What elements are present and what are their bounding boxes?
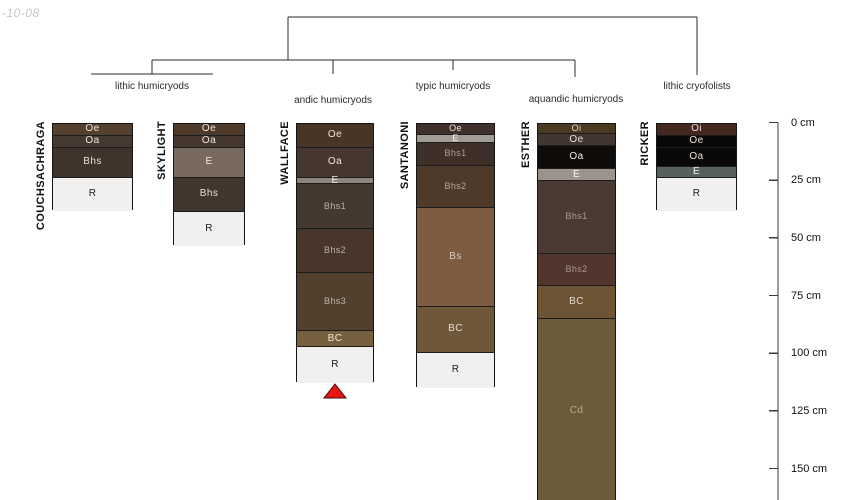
horizon-santanoni-e: E: [417, 134, 494, 142]
horizon-label: Oe: [328, 130, 342, 140]
group-label-aquandic-humicryods: aquandic humicryods: [529, 94, 624, 105]
horizon-ricker-r: R: [657, 177, 736, 212]
horizon-esther-oa: Oa: [538, 145, 615, 168]
profile-name-couchsachraga: COUCHSACHRAGA: [35, 121, 47, 230]
horizon-ricker-oa: Oa: [657, 147, 736, 167]
horizon-label: Cd: [570, 406, 584, 416]
depth-tick-label-75: 75 cm: [791, 290, 821, 302]
horizon-label: Oe: [85, 124, 99, 134]
horizon-label: R: [452, 365, 460, 375]
horizon-label: Oe: [202, 124, 216, 134]
horizon-esther-cd: Cd: [538, 318, 615, 500]
horizon-label: Oa: [85, 136, 99, 146]
profile-column-santanoni: OeEBhs1Bhs2BsBCR: [416, 123, 495, 387]
horizon-label: Bhs2: [324, 246, 346, 255]
horizon-skylight-e: E: [174, 147, 244, 177]
horizon-couchsachraga-oe: Oe: [53, 124, 132, 136]
horizon-skylight-oe: Oe: [174, 124, 244, 136]
horizon-skylight-oa: Oa: [174, 135, 244, 147]
horizon-label: Bhs2: [565, 265, 587, 274]
soil-profile-figure: -10-08 lithic humicryodsandic humicryods…: [0, 0, 850, 500]
depth-tick-label-100: 100 cm: [791, 347, 827, 359]
depth-tick-label-0: 0 cm: [791, 117, 815, 129]
horizon-couchsachraga-bhs: Bhs: [53, 147, 132, 177]
horizon-label: Bs: [449, 252, 461, 262]
depth-tick-label-50: 50 cm: [791, 232, 821, 244]
horizon-santanoni-bhs1: Bhs1: [417, 142, 494, 165]
depth-tick-label-125: 125 cm: [791, 405, 827, 417]
horizon-label: R: [693, 189, 701, 199]
group-label-typic-humicryods: typic humicryods: [416, 81, 490, 92]
depth-tick-label-25: 25 cm: [791, 174, 821, 186]
horizon-label: Oe: [569, 135, 583, 145]
horizon-label: E: [573, 170, 580, 180]
horizon-label: R: [331, 360, 339, 370]
group-label-andic-humicryods: andic humicryods: [294, 95, 372, 106]
horizon-wallface-bhs1: Bhs1: [297, 183, 373, 228]
red-triangle-marker: [324, 384, 346, 398]
horizon-wallface-e: E: [297, 177, 373, 184]
horizon-wallface-bhs3: Bhs3: [297, 272, 373, 330]
horizon-label: R: [205, 224, 213, 234]
profile-column-wallface: OeOaEBhs1Bhs2Bhs3BCR: [296, 123, 374, 383]
horizon-wallface-bhs2: Bhs2: [297, 228, 373, 272]
horizon-santanoni-bhs2: Bhs2: [417, 165, 494, 207]
group-label-lithic-cryofolists: lithic cryofolists: [663, 81, 730, 92]
profile-name-ricker: RICKER: [639, 121, 651, 166]
horizon-couchsachraga-r: R: [53, 177, 132, 212]
horizon-skylight-r: R: [174, 211, 244, 246]
horizon-wallface-r: R: [297, 346, 373, 383]
horizon-label: Oi: [691, 124, 702, 134]
horizon-label: BC: [448, 324, 463, 334]
horizon-santanoni-r: R: [417, 352, 494, 388]
horizon-couchsachraga-oa: Oa: [53, 135, 132, 147]
horizon-label: Oa: [328, 157, 342, 167]
horizon-label: Oa: [569, 152, 583, 162]
horizon-label: Bhs1: [444, 149, 466, 158]
horizon-label: E: [693, 167, 700, 177]
profile-column-skylight: OeOaEBhsR: [173, 123, 245, 245]
profile-name-wallface: WALLFACE: [279, 121, 291, 185]
horizon-label: Bhs2: [444, 182, 466, 191]
horizon-label: Bhs: [83, 157, 101, 167]
horizon-label: Oe: [689, 136, 703, 146]
horizon-skylight-bhs: Bhs: [174, 177, 244, 212]
horizon-label: E: [205, 157, 212, 167]
horizon-label: Bhs1: [324, 202, 346, 211]
horizon-santanoni-bs: Bs: [417, 207, 494, 306]
horizon-label: Bhs: [200, 189, 218, 199]
horizon-wallface-oa: Oa: [297, 147, 373, 177]
horizon-esther-bhs2: Bhs2: [538, 253, 615, 285]
profile-column-ricker: OiOeOaER: [656, 123, 737, 211]
horizon-esther-bc: BC: [538, 285, 615, 318]
profile-name-santanoni: SANTANONI: [399, 121, 411, 189]
horizon-label: Bhs1: [565, 212, 587, 221]
horizon-label: Oi: [572, 124, 582, 133]
profile-name-esther: ESTHER: [520, 121, 532, 168]
group-label-lithic-humicryods: lithic humicryods: [115, 81, 189, 92]
horizon-label: Bhs3: [324, 297, 346, 306]
depth-tick-label-150: 150 cm: [791, 463, 827, 475]
horizon-santanoni-bc: BC: [417, 306, 494, 352]
horizon-wallface-oe: Oe: [297, 124, 373, 147]
horizon-wallface-bc: BC: [297, 330, 373, 346]
horizon-ricker-oe: Oe: [657, 135, 736, 147]
profile-column-couchsachraga: OeOaBhsR: [52, 123, 133, 211]
profile-column-esther: OiOeOaEBhs1Bhs2BCCd: [537, 123, 616, 500]
horizon-esther-e: E: [538, 168, 615, 180]
horizon-label: Oa: [689, 152, 703, 162]
horizon-label: Oe: [449, 124, 462, 133]
horizon-label: Oa: [202, 136, 216, 146]
horizon-esther-oi: Oi: [538, 124, 615, 133]
profile-name-skylight: SKYLIGHT: [156, 121, 168, 180]
horizon-label: R: [89, 189, 97, 199]
horizon-label: BC: [569, 297, 584, 307]
horizon-esther-oe: Oe: [538, 133, 615, 146]
horizon-esther-bhs1: Bhs1: [538, 180, 615, 253]
horizon-ricker-oi: Oi: [657, 124, 736, 136]
horizon-ricker-e: E: [657, 166, 736, 176]
horizon-label: BC: [328, 334, 343, 344]
